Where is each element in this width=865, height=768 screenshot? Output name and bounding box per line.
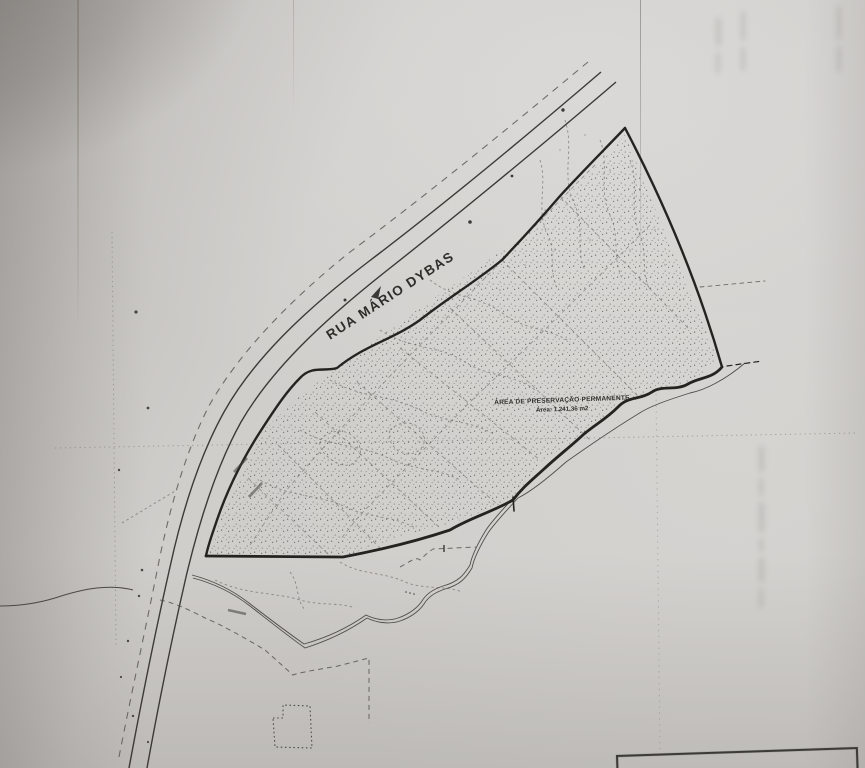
building-footprint <box>273 705 312 748</box>
title-block-box <box>617 748 858 768</box>
photographed-survey-plan: RUA MÁRIO DYBAS ÁREA DE PRESERVAÇÃO PERM… <box>0 0 865 768</box>
site-plan-drawing: RUA MÁRIO DYBAS ÁREA DE PRESERVAÇÃO PERM… <box>0 0 865 768</box>
screenshot-root: { "map": { "street_label": "RUA MÁRIO DY… <box>0 0 865 768</box>
left-branch-path <box>0 587 133 606</box>
app-stippled-area <box>206 135 718 557</box>
south-dashed-lines <box>160 547 476 723</box>
